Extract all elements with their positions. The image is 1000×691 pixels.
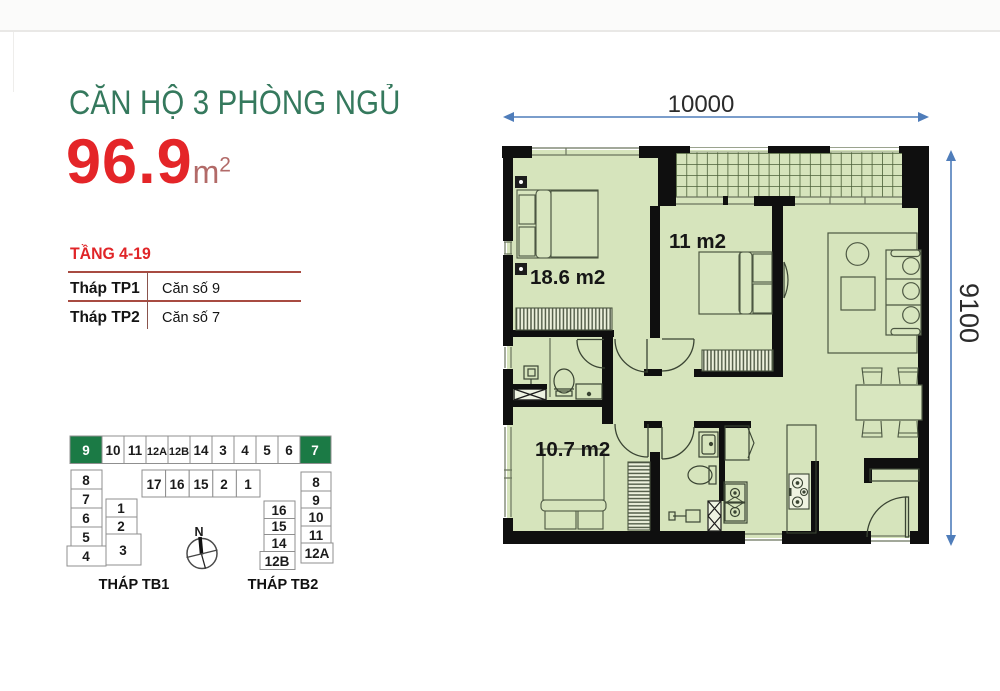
svg-text:4: 4 [82,549,90,564]
svg-text:15: 15 [271,519,287,534]
svg-text:4: 4 [241,443,249,458]
svg-text:17: 17 [146,477,161,492]
svg-text:16: 16 [271,503,287,518]
svg-text:2: 2 [117,519,125,534]
svg-text:12B: 12B [169,446,189,458]
svg-text:11 m2: 11 m2 [669,230,726,253]
svg-text:10: 10 [308,510,323,525]
svg-text:7: 7 [82,492,90,507]
svg-text:10.7 m2: 10.7 m2 [535,438,610,461]
svg-text:14: 14 [271,536,287,551]
svg-text:5: 5 [82,530,90,545]
svg-text:18.6 m2: 18.6 m2 [530,266,605,289]
svg-text:12A: 12A [147,446,167,458]
svg-text:8: 8 [82,473,90,488]
svg-text:3: 3 [119,543,127,558]
svg-text:THÁP TB1: THÁP TB1 [99,576,170,593]
svg-text:12A: 12A [305,546,330,561]
svg-text:9: 9 [312,493,320,508]
svg-text:1: 1 [117,501,125,516]
svg-text:12B: 12B [265,554,290,569]
svg-text:THÁP TB2: THÁP TB2 [248,576,319,593]
svg-text:10: 10 [105,443,120,458]
svg-text:9: 9 [82,443,90,458]
svg-text:5: 5 [263,443,271,458]
svg-text:9100: 9100 [954,283,984,343]
svg-text:6: 6 [285,443,293,458]
svg-text:2: 2 [220,477,228,492]
svg-text:3: 3 [219,443,227,458]
svg-text:8: 8 [312,475,320,490]
svg-text:14: 14 [193,443,209,458]
svg-text:11: 11 [309,528,324,543]
svg-text:1: 1 [244,477,252,492]
svg-text:N: N [194,525,203,539]
svg-text:11: 11 [128,443,143,458]
svg-text:15: 15 [193,477,209,492]
svg-text:16: 16 [169,477,185,492]
svg-text:6: 6 [82,511,90,526]
svg-text:7: 7 [311,443,319,458]
svg-text:10000: 10000 [668,91,735,118]
